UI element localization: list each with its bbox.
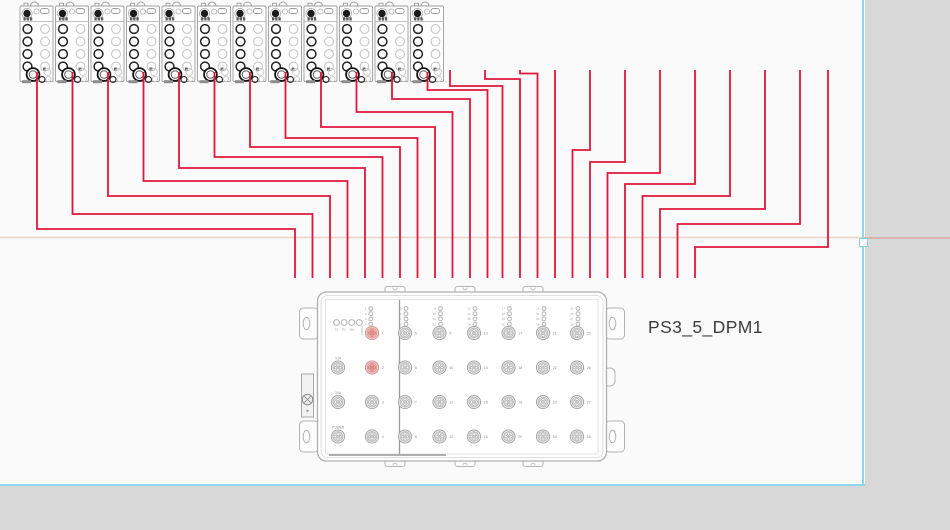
port-connector[interactable] <box>467 395 480 408</box>
svg-text:X24: X24 <box>335 356 341 360</box>
io-module[interactable] <box>162 2 195 83</box>
drawing-canvas[interactable]: P1P2SMFAULT1234X24X0APOWER12345678567891… <box>0 0 950 530</box>
svg-text:23: 23 <box>553 400 557 404</box>
io-module[interactable] <box>375 2 408 83</box>
svg-text:X0A: X0A <box>335 391 342 395</box>
wire-connection[interactable] <box>108 72 330 278</box>
svg-text:27: 27 <box>587 400 591 404</box>
guide-line-overlay <box>864 237 950 239</box>
port-connector[interactable] <box>365 395 378 408</box>
svg-text:24: 24 <box>553 435 557 439</box>
port-connector[interactable] <box>331 395 344 408</box>
svg-text:10: 10 <box>433 312 437 316</box>
port-connector[interactable] <box>570 326 583 339</box>
io-module[interactable] <box>269 2 302 83</box>
port-connector[interactable] <box>570 395 583 408</box>
io-module[interactable] <box>340 2 373 83</box>
wire-connection[interactable] <box>450 70 503 278</box>
port-connector[interactable] <box>398 430 411 443</box>
svg-text:P2: P2 <box>342 328 346 332</box>
wire-connection[interactable] <box>357 72 453 278</box>
svg-text:20: 20 <box>518 435 522 439</box>
port-connector[interactable] <box>398 326 411 339</box>
svg-text:17: 17 <box>518 331 522 335</box>
svg-text:21: 21 <box>553 331 557 335</box>
svg-text:7: 7 <box>415 400 417 404</box>
svg-text:SM: SM <box>349 328 354 332</box>
port-connector[interactable] <box>502 430 515 443</box>
wire-connection[interactable] <box>179 72 365 278</box>
page-boundary-bottom <box>0 484 865 486</box>
svg-text:22: 22 <box>553 366 557 370</box>
svg-text:27: 27 <box>570 317 574 321</box>
io-module[interactable] <box>198 2 231 83</box>
svg-text:28: 28 <box>587 435 591 439</box>
dpm-device[interactable]: P1P2SMFAULT1234X24X0APOWER12345678567891… <box>300 287 625 467</box>
schematic-svg: P1P2SMFAULT1234X24X0APOWER12345678567891… <box>0 0 950 530</box>
port-connector[interactable] <box>467 361 480 374</box>
io-module[interactable] <box>233 2 266 83</box>
svg-text:18: 18 <box>518 366 522 370</box>
port-connector[interactable] <box>502 361 515 374</box>
wire-connection[interactable] <box>520 70 538 278</box>
io-module[interactable] <box>91 2 124 83</box>
svg-text:26: 26 <box>587 366 591 370</box>
svg-text:1: 1 <box>382 331 384 335</box>
port-connector[interactable] <box>331 430 344 443</box>
svg-text:10: 10 <box>449 366 453 370</box>
wire-connection[interactable] <box>144 72 348 278</box>
port-connector[interactable] <box>398 361 411 374</box>
port-connector[interactable] <box>433 395 446 408</box>
wire-connection[interactable] <box>428 72 488 278</box>
port-connector[interactable] <box>502 395 515 408</box>
svg-text:15: 15 <box>484 400 488 404</box>
svg-text:12: 12 <box>433 322 437 326</box>
svg-text:15: 15 <box>467 317 471 321</box>
svg-text:24: 24 <box>536 322 540 326</box>
svg-text:11: 11 <box>449 400 453 404</box>
wire-connection[interactable] <box>392 72 470 278</box>
outside-page-area-right <box>865 0 950 530</box>
io-module[interactable] <box>20 2 53 83</box>
svg-text:25: 25 <box>587 331 591 335</box>
io-module[interactable] <box>56 2 89 83</box>
port-connector[interactable] <box>536 395 549 408</box>
svg-text:14: 14 <box>467 312 471 316</box>
port-connector[interactable] <box>536 430 549 443</box>
port-connector[interactable] <box>536 326 549 339</box>
svg-text:6: 6 <box>415 366 417 370</box>
port-connector[interactable] <box>433 430 446 443</box>
port-connector[interactable] <box>398 395 411 408</box>
wire-connection[interactable] <box>286 72 418 278</box>
svg-text:22: 22 <box>536 312 540 316</box>
svg-text:3: 3 <box>382 400 384 404</box>
io-module[interactable] <box>304 2 337 83</box>
svg-text:19: 19 <box>518 400 522 404</box>
svg-text:2: 2 <box>382 366 384 370</box>
svg-text:13: 13 <box>484 331 488 335</box>
outside-page-area-bottom <box>0 486 865 530</box>
svg-text:20: 20 <box>502 322 506 326</box>
svg-text:16: 16 <box>484 435 488 439</box>
svg-text:9: 9 <box>449 331 451 335</box>
port-connector[interactable] <box>467 326 480 339</box>
svg-text:12: 12 <box>449 435 453 439</box>
wire-connection[interactable] <box>250 72 400 278</box>
svg-text:26: 26 <box>570 312 574 316</box>
svg-text:21: 21 <box>536 307 540 311</box>
selection-handle[interactable] <box>859 238 868 247</box>
svg-text:14: 14 <box>484 366 488 370</box>
io-module[interactable] <box>127 2 160 83</box>
svg-text:POWER: POWER <box>332 425 345 429</box>
io-module[interactable] <box>411 2 444 83</box>
port-connector-highlighted[interactable] <box>365 361 378 374</box>
svg-text:18: 18 <box>502 312 506 316</box>
wire-connection[interactable] <box>37 72 295 278</box>
svg-text:19: 19 <box>502 317 506 321</box>
port-connector[interactable] <box>365 430 378 443</box>
wire-connection[interactable] <box>608 70 661 278</box>
port-connector[interactable] <box>433 361 446 374</box>
port-connector[interactable] <box>502 326 515 339</box>
svg-text:28: 28 <box>570 322 574 326</box>
port-connector[interactable] <box>433 326 446 339</box>
port-connector[interactable] <box>570 430 583 443</box>
svg-text:8: 8 <box>415 435 417 439</box>
wire-connection[interactable] <box>573 70 591 278</box>
port-connector-highlighted[interactable] <box>365 326 378 339</box>
port-connector[interactable] <box>570 361 583 374</box>
svg-text:16: 16 <box>467 322 471 326</box>
svg-text:23: 23 <box>536 317 540 321</box>
svg-text:FAULT: FAULT <box>360 327 364 336</box>
svg-text:4: 4 <box>382 435 384 439</box>
svg-text:11: 11 <box>433 317 436 321</box>
svg-text:17: 17 <box>502 307 506 311</box>
svg-text:25: 25 <box>570 307 574 311</box>
port-connector[interactable] <box>536 361 549 374</box>
svg-text:5: 5 <box>415 331 417 335</box>
wire-connection[interactable] <box>695 70 828 278</box>
port-connector[interactable] <box>331 361 344 374</box>
svg-text:13: 13 <box>467 307 471 311</box>
port-connector[interactable] <box>467 430 480 443</box>
svg-text:P1: P1 <box>335 328 339 332</box>
device-label[interactable]: PS3_5_DPM1 <box>648 317 763 338</box>
